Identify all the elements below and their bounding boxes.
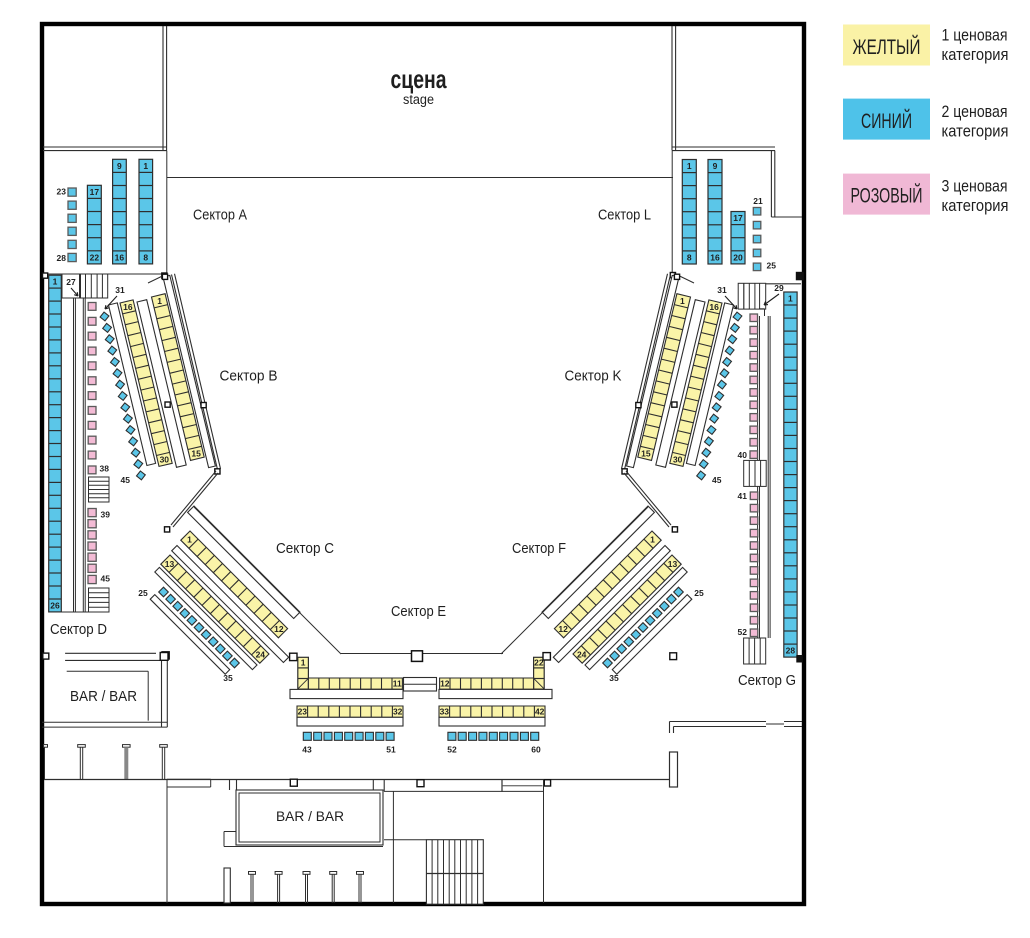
svg-text:25: 25 xyxy=(694,588,704,598)
svg-text:Сектор А: Сектор А xyxy=(193,208,247,224)
svg-text:17: 17 xyxy=(733,213,743,223)
svg-text:Сектор E: Сектор E xyxy=(391,604,446,620)
svg-text:41: 41 xyxy=(738,491,748,501)
svg-text:15: 15 xyxy=(191,448,201,458)
svg-text:26: 26 xyxy=(50,601,60,611)
svg-text:9: 9 xyxy=(713,161,718,171)
svg-text:Сектор D: Сектор D xyxy=(50,622,107,638)
svg-text:31: 31 xyxy=(717,285,727,295)
svg-text:38: 38 xyxy=(100,464,110,474)
svg-text:28: 28 xyxy=(786,646,796,656)
svg-text:32: 32 xyxy=(393,707,403,717)
svg-text:СИНИЙ: СИНИЙ xyxy=(861,109,912,133)
svg-text:сцена: сцена xyxy=(391,64,447,94)
svg-text:12: 12 xyxy=(274,624,284,634)
svg-text:1: 1 xyxy=(650,535,655,545)
svg-text:1: 1 xyxy=(143,161,148,171)
svg-text:РОЗОВЫЙ: РОЗОВЫЙ xyxy=(851,184,923,208)
svg-text:3 ценовая: 3 ценовая xyxy=(942,177,1008,196)
svg-text:12: 12 xyxy=(558,624,568,634)
svg-text:Сектор C: Сектор C xyxy=(276,541,334,557)
svg-text:ЖЕЛТЫЙ: ЖЕЛТЫЙ xyxy=(853,35,921,59)
svg-text:27: 27 xyxy=(66,277,76,287)
svg-text:13: 13 xyxy=(165,559,175,569)
svg-text:25: 25 xyxy=(767,261,777,271)
svg-text:1: 1 xyxy=(53,277,58,287)
svg-text:24: 24 xyxy=(577,650,587,660)
svg-text:35: 35 xyxy=(609,673,619,683)
svg-text:31: 31 xyxy=(115,285,125,295)
svg-text:Сектор L: Сектор L xyxy=(598,208,651,224)
svg-text:39: 39 xyxy=(101,510,111,520)
svg-text:29: 29 xyxy=(774,283,784,293)
svg-text:1 ценовая: 1 ценовая xyxy=(942,26,1008,45)
svg-text:16: 16 xyxy=(123,302,133,312)
svg-text:Сектор G: Сектор G xyxy=(738,673,796,689)
svg-text:30: 30 xyxy=(673,454,683,464)
svg-text:категория: категория xyxy=(942,45,1009,64)
svg-text:Сектор K: Сектор K xyxy=(565,369,622,385)
svg-text:stage: stage xyxy=(403,92,434,107)
svg-text:21: 21 xyxy=(753,196,763,206)
svg-text:23: 23 xyxy=(298,707,308,717)
svg-text:22: 22 xyxy=(90,252,100,262)
svg-text:17: 17 xyxy=(90,187,100,197)
svg-text:9: 9 xyxy=(117,161,122,171)
svg-text:1: 1 xyxy=(788,294,793,304)
svg-text:30: 30 xyxy=(160,454,170,464)
svg-text:Сектор B: Сектор B xyxy=(220,369,278,385)
svg-text:25: 25 xyxy=(138,588,148,598)
svg-text:23: 23 xyxy=(57,187,67,197)
svg-text:16: 16 xyxy=(709,302,719,312)
svg-text:BAR / BAR: BAR / BAR xyxy=(276,808,344,824)
svg-text:16: 16 xyxy=(115,253,125,263)
svg-text:33: 33 xyxy=(440,707,450,717)
svg-text:категория: категория xyxy=(942,196,1009,215)
svg-text:16: 16 xyxy=(710,253,720,263)
svg-text:24: 24 xyxy=(256,650,266,660)
svg-text:52: 52 xyxy=(738,627,748,637)
svg-text:12: 12 xyxy=(440,679,450,689)
svg-text:15: 15 xyxy=(641,448,651,458)
svg-text:45: 45 xyxy=(121,475,131,485)
svg-text:13: 13 xyxy=(668,559,678,569)
svg-text:43: 43 xyxy=(302,745,312,755)
svg-text:8: 8 xyxy=(143,253,148,263)
svg-text:Сектор F: Сектор F xyxy=(512,541,566,557)
svg-text:BAR / BAR: BAR / BAR xyxy=(70,688,137,705)
svg-text:1: 1 xyxy=(187,535,192,545)
svg-text:40: 40 xyxy=(738,450,748,460)
svg-text:1: 1 xyxy=(687,161,692,171)
svg-text:1: 1 xyxy=(680,296,685,306)
svg-text:42: 42 xyxy=(535,707,545,717)
svg-text:8: 8 xyxy=(687,253,692,263)
svg-text:52: 52 xyxy=(447,745,457,755)
svg-text:20: 20 xyxy=(733,252,743,262)
svg-text:35: 35 xyxy=(223,673,233,683)
svg-text:28: 28 xyxy=(57,253,67,263)
svg-text:45: 45 xyxy=(712,475,722,485)
svg-text:51: 51 xyxy=(386,745,396,755)
svg-text:60: 60 xyxy=(531,745,541,755)
svg-text:11: 11 xyxy=(393,679,402,689)
svg-text:категория: категория xyxy=(942,122,1009,141)
svg-text:1: 1 xyxy=(157,296,162,306)
svg-text:2 ценовая: 2 ценовая xyxy=(942,102,1008,121)
svg-text:1: 1 xyxy=(301,658,306,668)
svg-text:45: 45 xyxy=(101,574,111,584)
